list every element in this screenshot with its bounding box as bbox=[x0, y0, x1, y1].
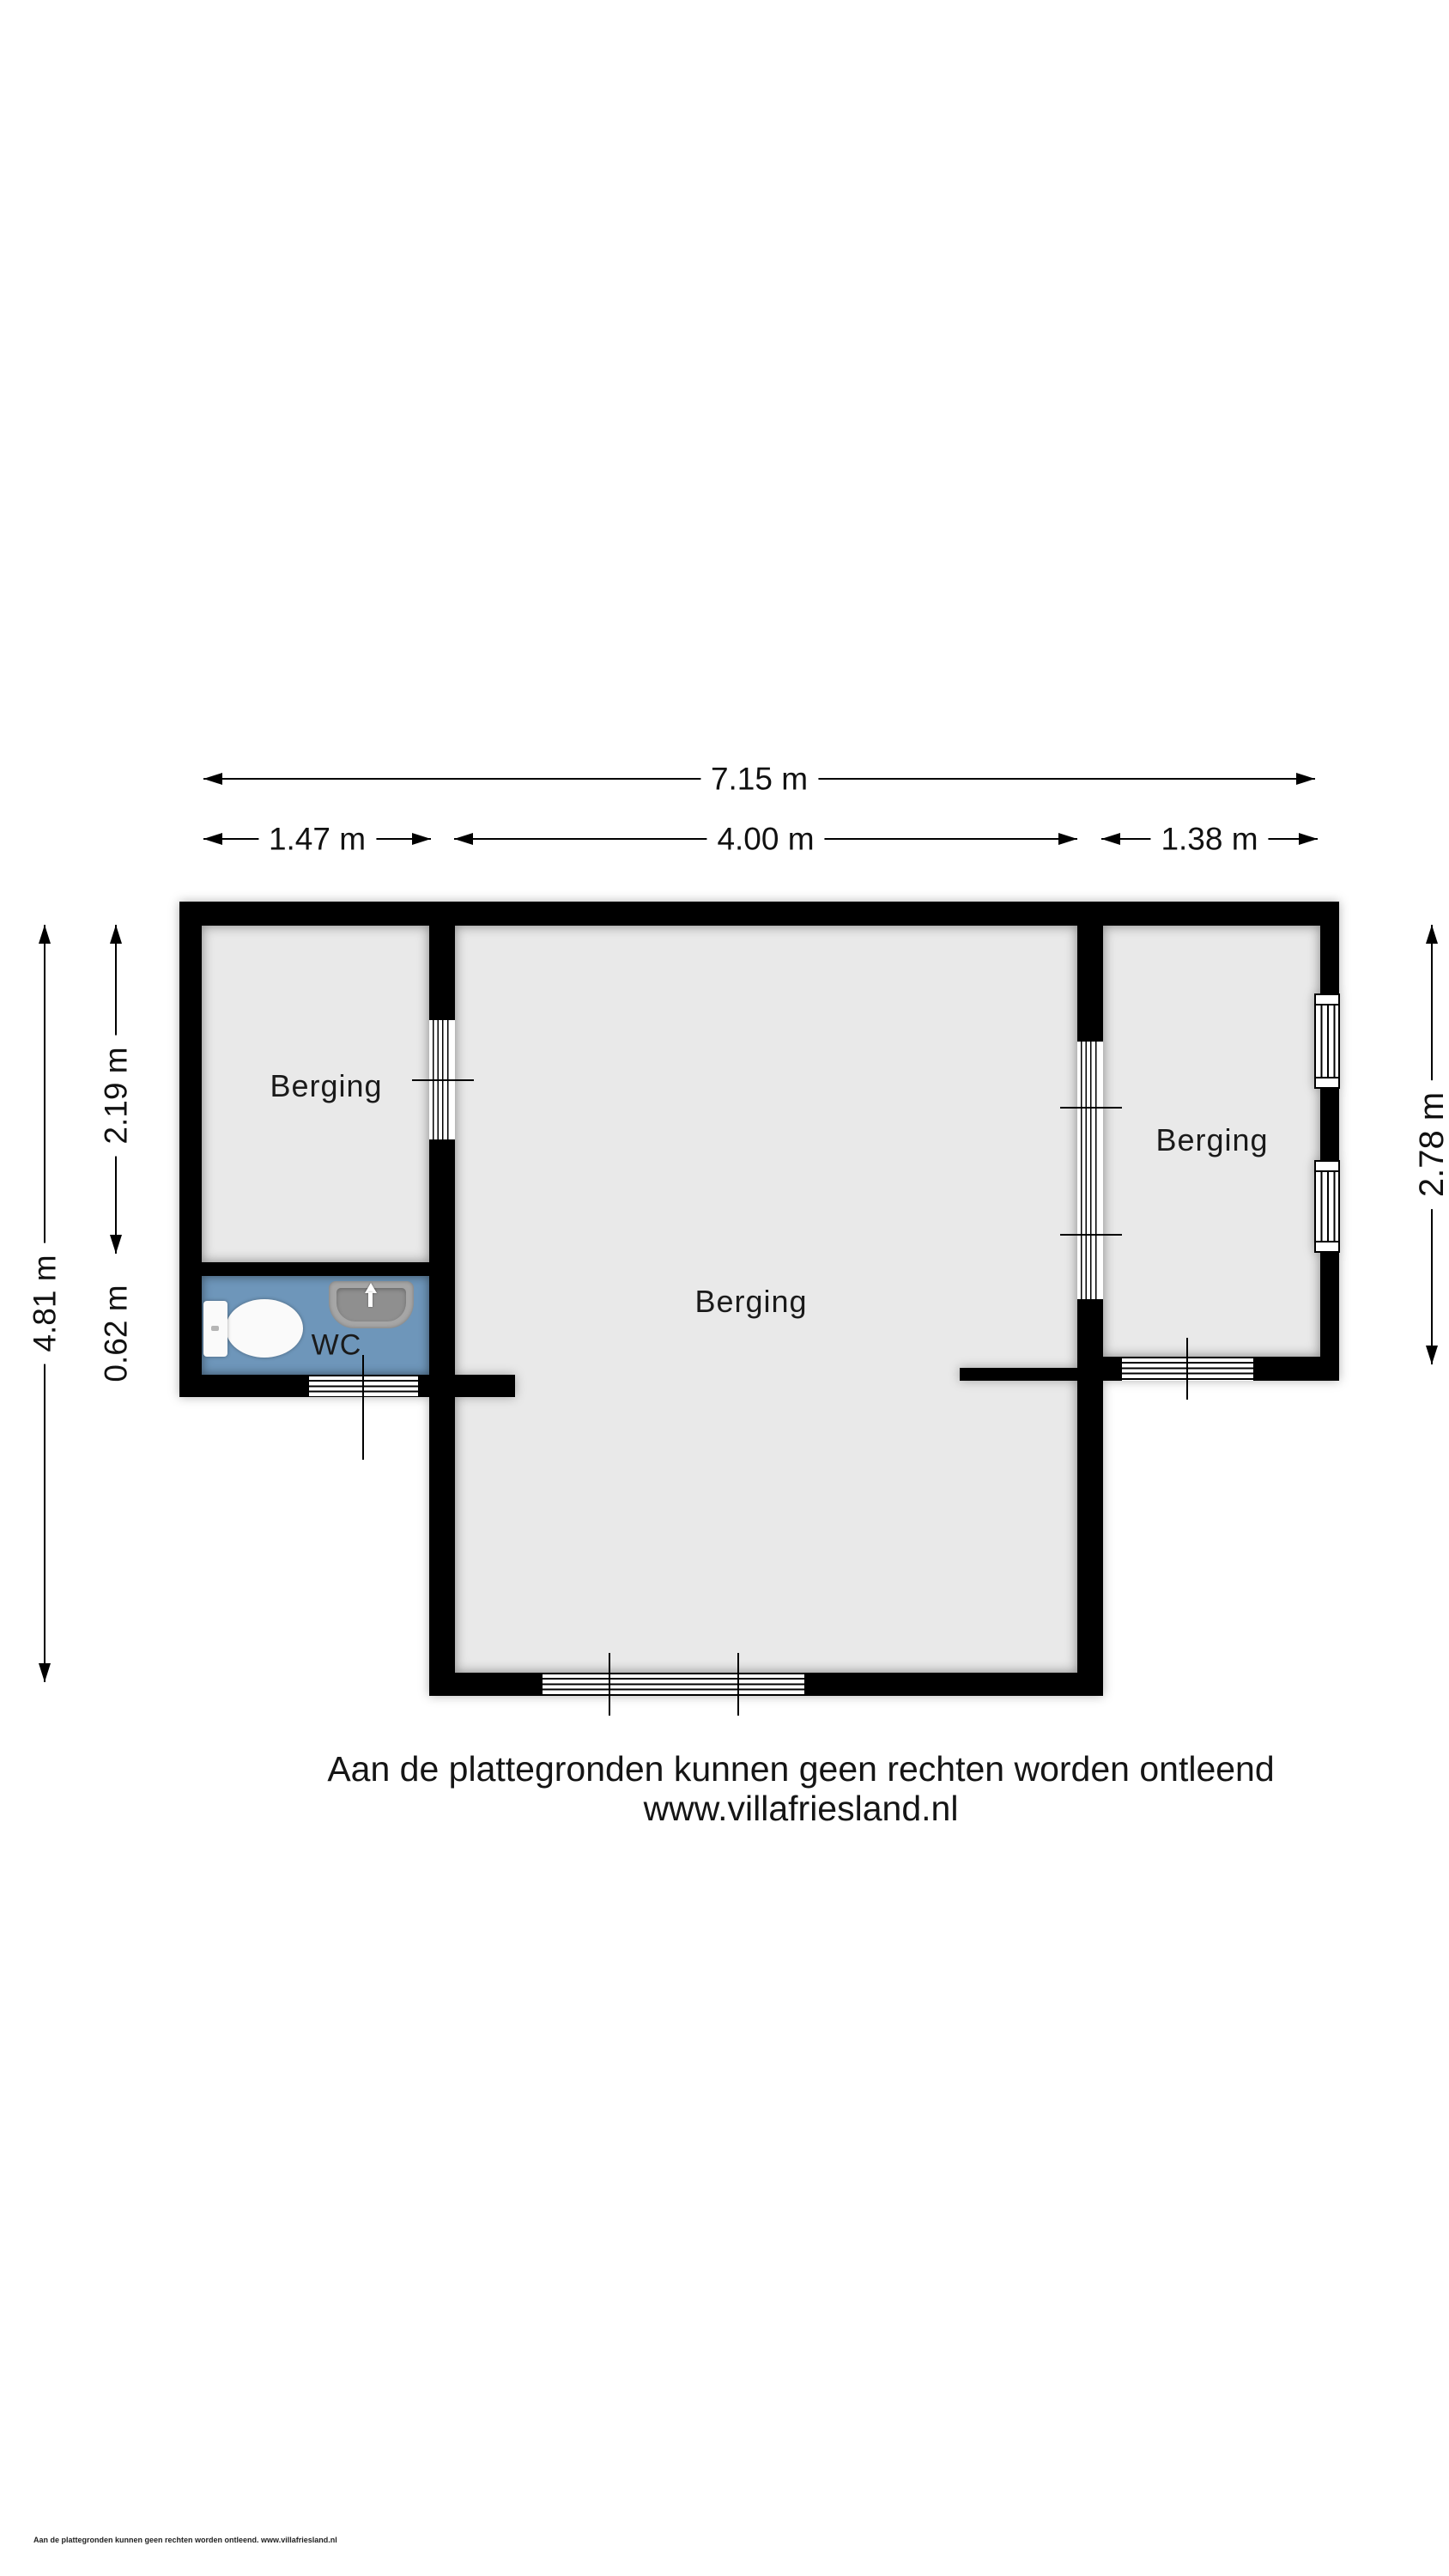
footer-website: www.villafriesland.nl bbox=[644, 1789, 959, 1829]
dimension-left-total-height: 4.81 m bbox=[26, 925, 64, 1682]
dimension-left-width: 1.47 m bbox=[203, 820, 431, 858]
wall-a-upper bbox=[429, 926, 455, 1020]
dimension-label: 7.15 m bbox=[700, 762, 818, 797]
wall-wc-bottom-left bbox=[202, 1375, 309, 1397]
dimension-wc-height: 0.62 m bbox=[97, 1273, 135, 1394]
wall-bottom-left-seg bbox=[429, 1673, 543, 1696]
door-line-b2 bbox=[1060, 1234, 1122, 1236]
door-line-a bbox=[412, 1079, 474, 1081]
room-label-berging-middle: Berging bbox=[694, 1284, 807, 1320]
dimension-total-width: 7.15 m bbox=[203, 760, 1315, 798]
floor-plan-page: Berging Berging Berging WC 7.15 m 1.47 m… bbox=[0, 0, 1449, 2576]
wall-top bbox=[179, 902, 1339, 926]
wall-stub-right bbox=[960, 1368, 1077, 1381]
wall-b-lower bbox=[1077, 1299, 1103, 1696]
dimension-label: 0.62 m bbox=[99, 1273, 134, 1394]
wall-b-upper bbox=[1077, 926, 1103, 1042]
dimension-label: 4.81 m bbox=[27, 1242, 63, 1364]
fine-print: Aan de plattegronden kunnen geen rechten… bbox=[33, 2536, 337, 2544]
window-panes bbox=[1316, 1005, 1338, 1077]
dimension-right-room-height: 2.78 m bbox=[1413, 925, 1449, 1364]
wall-wc-divider bbox=[202, 1262, 429, 1276]
window-right-2 bbox=[1314, 1160, 1340, 1253]
window-line-bottom-2 bbox=[737, 1653, 739, 1716]
room-label-berging-left: Berging bbox=[270, 1068, 382, 1104]
wall-right-a bbox=[1320, 926, 1339, 993]
door-line-rb bbox=[1186, 1338, 1188, 1400]
wall-bottom-right-seg bbox=[804, 1673, 1103, 1696]
window-cap bbox=[1316, 1241, 1338, 1242]
wall-left bbox=[179, 926, 202, 1397]
dimension-left-room-height: 2.19 m bbox=[97, 925, 135, 1254]
window-right-1 bbox=[1314, 993, 1340, 1089]
window-line-bottom-1 bbox=[609, 1653, 610, 1716]
room-label-wc: WC bbox=[312, 1329, 362, 1363]
dimension-right-width: 1.38 m bbox=[1101, 820, 1318, 858]
opening-berging-right bbox=[1077, 1042, 1103, 1299]
window-panes bbox=[1316, 1172, 1338, 1241]
dimension-label: 4.00 m bbox=[706, 822, 824, 857]
wall-a-lower bbox=[429, 1139, 455, 1696]
dimension-middle-width: 4.00 m bbox=[454, 820, 1077, 858]
dimension-label: 2.19 m bbox=[99, 1036, 134, 1157]
footer-disclaimer: Aan de plattegronden kunnen geen rechten… bbox=[327, 1749, 1274, 1789]
wall-rb-bottom-left bbox=[1103, 1357, 1122, 1381]
dimension-label: 1.47 m bbox=[258, 822, 376, 857]
toilet-flush-mark bbox=[211, 1326, 219, 1331]
wall-right-c bbox=[1320, 1253, 1339, 1381]
wall-right-b bbox=[1320, 1089, 1339, 1160]
toilet-bowl bbox=[226, 1299, 303, 1358]
dimension-label: 2.78 m bbox=[1413, 1080, 1449, 1209]
door-line-wc bbox=[362, 1355, 364, 1460]
window-cap bbox=[1316, 1077, 1338, 1078]
bottom-window bbox=[543, 1673, 804, 1696]
wall-stub-left bbox=[455, 1375, 515, 1397]
dimension-label: 1.38 m bbox=[1150, 822, 1268, 857]
door-line-b1 bbox=[1060, 1107, 1122, 1109]
room-label-berging-right: Berging bbox=[1155, 1122, 1268, 1158]
